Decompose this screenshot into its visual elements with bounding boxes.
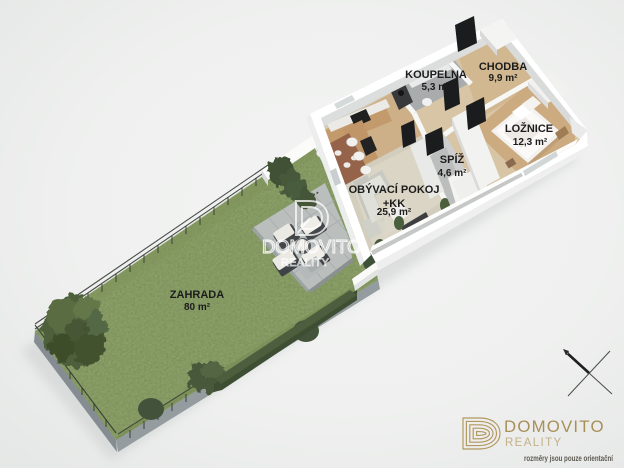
svg-text:DOMOVITO: DOMOVITO [262,236,363,257]
svg-text:9,9 m²: 9,9 m² [489,73,519,84]
svg-text:25,9 m²: 25,9 m² [377,207,412,218]
svg-text:CHODBA: CHODBA [479,61,527,73]
svg-text:KOUPELNA: KOUPELNA [405,69,467,81]
svg-text:12,3 m²: 12,3 m² [513,137,548,148]
svg-text:5,3 m²: 5,3 m² [422,82,452,93]
svg-text:OBÝVACÍ POKOJ: OBÝVACÍ POKOJ [349,183,440,196]
svg-text:4,6 m²: 4,6 m² [438,168,468,179]
svg-text:DOMOVITO: DOMOVITO [504,417,605,436]
svg-text:ZAHRADA: ZAHRADA [170,289,224,301]
svg-text:rozměry jsou pouze orientační: rozměry jsou pouze orientační [524,453,613,463]
svg-text:REALITY: REALITY [505,437,563,449]
svg-text:LOŽNICE: LOŽNICE [505,122,553,135]
svg-text:80 m²: 80 m² [184,302,211,313]
svg-text:REALITY: REALITY [281,257,331,269]
svg-text:SPÍŽ: SPÍŽ [440,153,465,166]
